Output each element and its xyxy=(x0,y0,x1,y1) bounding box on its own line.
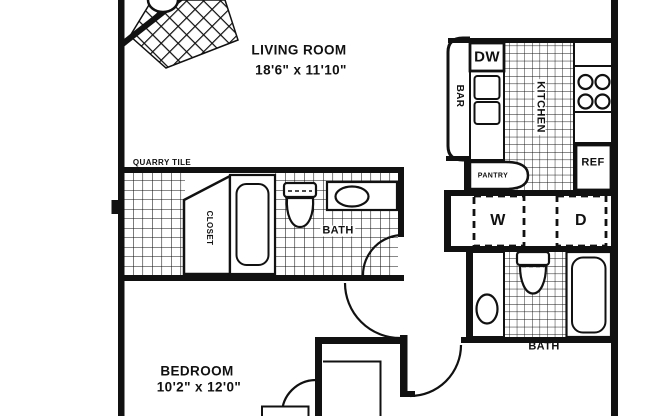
bedroom-dimensions: 10'2" x 12'0" xyxy=(157,380,241,394)
entry-area xyxy=(120,0,238,68)
kitchen-label: KITCHEN xyxy=(535,79,546,135)
bedroom-label: BEDROOM xyxy=(160,364,233,378)
closet-label: CLOSET xyxy=(205,209,213,248)
bedroom-top-wall xyxy=(118,275,404,281)
laundry-bottom-wall xyxy=(444,246,615,252)
door-jamb xyxy=(400,391,415,397)
master-bath-door-arc xyxy=(410,345,461,396)
hall-quarry-tile-floor xyxy=(124,173,185,275)
kitchen-top-wall xyxy=(448,38,615,43)
living-room-dimensions: 18'6" x 11'10" xyxy=(255,63,347,77)
stove-burners xyxy=(579,75,610,109)
right-wall xyxy=(611,0,618,416)
bathtub xyxy=(567,252,612,337)
refrigerator-label: REF xyxy=(581,158,604,169)
hall-bath-label: BATH xyxy=(320,226,355,237)
master-bath-left-wall xyxy=(466,252,472,342)
laundry-top-wall xyxy=(444,190,615,196)
bedroom-closet-inner xyxy=(323,362,381,416)
hall-bath xyxy=(124,173,403,275)
floor-plan: LIVING ROOM 18'6" x 11'10" BEDROOM 10'2"… xyxy=(0,0,652,416)
bedroom-closet-top-wall xyxy=(315,337,407,344)
bedroom-closet-left-wall xyxy=(315,337,322,416)
hall-top-wall xyxy=(118,167,404,173)
left-wall xyxy=(118,0,125,416)
washer-label: W xyxy=(490,213,506,229)
hall-bath-right-wall xyxy=(398,167,404,237)
bedroom-dresser xyxy=(262,407,309,416)
bedroom-area xyxy=(262,283,400,416)
master-bath xyxy=(410,252,611,396)
bar-label: BAR xyxy=(454,85,464,108)
master-bath-label: BATH xyxy=(528,342,559,353)
living-room-label: LIVING ROOM xyxy=(251,43,346,57)
sink-counter xyxy=(327,182,397,210)
kitchen-sink xyxy=(475,76,500,124)
bedroom-right-wall xyxy=(400,335,408,397)
vanity-sink xyxy=(472,252,504,337)
pantry-label: PANTRY xyxy=(478,173,508,180)
laundry-left-wall xyxy=(444,190,451,252)
pantry-left-wall xyxy=(464,156,470,192)
dishwasher-label: DW xyxy=(474,50,500,65)
entry-lattice-tile xyxy=(130,0,238,68)
bathtub xyxy=(230,175,275,274)
dryer-label: D xyxy=(575,213,587,229)
left-wall-notch xyxy=(112,200,119,214)
quarry-tile-label: QUARRY TILE xyxy=(133,159,191,167)
bedroom-door-arc xyxy=(345,283,400,338)
